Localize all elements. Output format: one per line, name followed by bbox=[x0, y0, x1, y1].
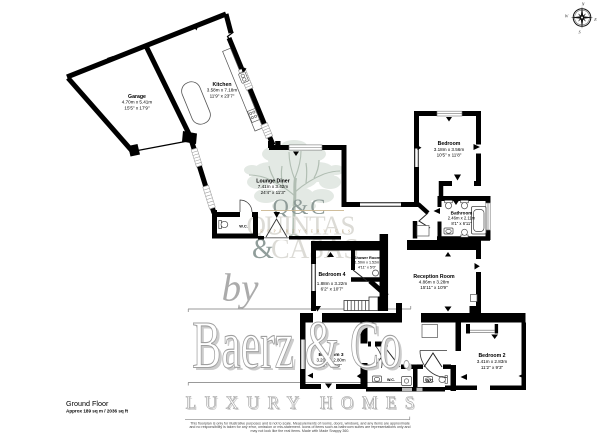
svg-text:Bedroom 4: Bedroom 4 bbox=[318, 272, 345, 278]
svg-text:W.C.: W.C. bbox=[239, 224, 247, 229]
svg-text:6'2" x 10'7": 6'2" x 10'7" bbox=[321, 287, 344, 292]
svg-text:4.70m x 5.41m: 4.70m x 5.41m bbox=[122, 100, 153, 105]
svg-text:may not look like the real ite: may not look like the real items. Made w… bbox=[251, 429, 350, 433]
svg-text:Approx 189 sq m / 2036 sq ft: Approx 189 sq m / 2036 sq ft bbox=[66, 409, 129, 414]
svg-text:Shower Room: Shower Room bbox=[354, 255, 381, 260]
svg-text:15'5" x 17'9": 15'5" x 17'9" bbox=[124, 105, 150, 110]
svg-text:W: W bbox=[565, 14, 569, 19]
svg-text:Ground Floor: Ground Floor bbox=[66, 399, 109, 408]
svg-text:Baerz & Co.: Baerz & Co. bbox=[192, 308, 412, 383]
svg-text:7.41m x 3.42m: 7.41m x 3.42m bbox=[258, 184, 289, 189]
svg-text:24'4" x 11'3": 24'4" x 11'3" bbox=[261, 190, 286, 195]
svg-text:11'9" x 23'7": 11'9" x 23'7" bbox=[210, 93, 235, 98]
svg-text:4.86m x 3.28m: 4.86m x 3.28m bbox=[419, 280, 450, 285]
svg-text:by: by bbox=[222, 267, 260, 310]
svg-text:8'1" x 6'11": 8'1" x 6'11" bbox=[451, 221, 472, 226]
svg-text:1.88m x 3.22m: 1.88m x 3.22m bbox=[317, 281, 348, 286]
svg-text:11'2" x 9'3": 11'2" x 9'3" bbox=[481, 365, 504, 370]
svg-text:N: N bbox=[581, 2, 585, 7]
svg-text:4'11" x 5'0": 4'11" x 5'0" bbox=[358, 265, 377, 269]
svg-text:10'5" x 11'8": 10'5" x 11'8" bbox=[437, 153, 462, 158]
svg-text:3.18m x 3.56m: 3.18m x 3.56m bbox=[434, 147, 465, 152]
svg-text:15'11" x 10'9": 15'11" x 10'9" bbox=[420, 285, 448, 290]
svg-text:W.C.: W.C. bbox=[426, 379, 434, 383]
svg-text:3.58m x 7.18m: 3.58m x 7.18m bbox=[207, 88, 238, 93]
svg-text:E: E bbox=[593, 17, 597, 22]
svg-text:3.41m x 2.83m: 3.41m x 2.83m bbox=[477, 359, 508, 364]
svg-text:1.50m x 1.52m: 1.50m x 1.52m bbox=[355, 261, 379, 265]
